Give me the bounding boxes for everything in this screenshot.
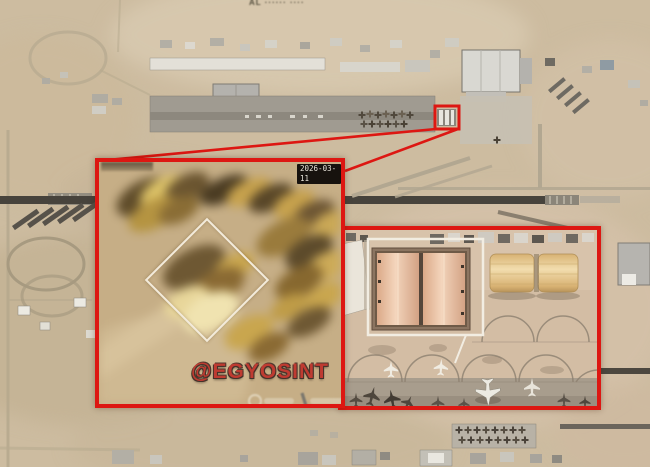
place-label: AL ······ ···· bbox=[249, 0, 305, 7]
highres-scene bbox=[342, 230, 597, 406]
inset-lowres-imagery: 2026-03-11 @EGYOSINT bbox=[95, 158, 345, 408]
parallel-taxiway bbox=[398, 187, 650, 190]
bottom-apron bbox=[452, 424, 536, 448]
screenshot-root: AL ······ ···· bbox=[0, 0, 650, 467]
connector-taxiway bbox=[538, 124, 542, 188]
salmon-hangars bbox=[372, 248, 470, 330]
capture-date-label: 2026-03-11 bbox=[297, 164, 341, 184]
target-area-buildings bbox=[437, 109, 456, 126]
inset-corner-label bbox=[101, 162, 153, 171]
watermark-egyosint: @EGYOSINT bbox=[191, 360, 329, 384]
inset-highres-imagery bbox=[338, 226, 601, 410]
provider-logo-watermark bbox=[247, 390, 345, 408]
white-hangar-complex bbox=[460, 50, 532, 144]
right-compound bbox=[618, 243, 650, 285]
